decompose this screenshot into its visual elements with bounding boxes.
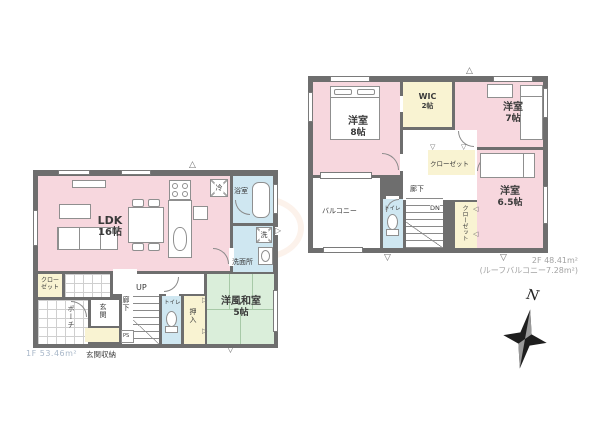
bedroom65-label: 洋室 6.5帖 [488,186,532,209]
closet-door-marker: ◁ [473,231,478,238]
toilet-2f-label: トイレ [384,204,401,212]
bedroom8-label: 洋室 8帖 [328,116,388,139]
refrigerator: 冷 [210,179,228,197]
hallway-upper [113,274,204,294]
closet-door-marker: ◁ [473,206,478,213]
toilet-1f-label: トイレ [164,298,181,306]
ps-label: PS [123,333,129,339]
genkan-label: 玄関 [99,303,106,319]
pillow [334,89,352,95]
washroom-label: 洗面所 [232,257,253,267]
washing-machine: 洗 [256,227,272,243]
balcony-slider [320,172,372,179]
window [493,76,533,82]
vent-marker-down: ▽ [384,254,391,263]
toilet-bowl [387,214,398,230]
window [273,290,278,332]
vent-marker-up: △ [466,67,473,76]
dishwasher [193,206,208,220]
room-genkan-storage [85,328,119,342]
toilet-tank [386,229,399,236]
stove-burner [172,183,178,189]
stove-burner [182,191,188,197]
closet-upper-label: クローゼット [430,158,469,168]
door-opening [113,269,137,274]
dining-chair [148,243,160,251]
washitsu-label: 洋風和室 5帖 [209,296,273,319]
closet-side-label: クローゼット [461,205,467,241]
refrigerator-label: 冷 [215,183,224,193]
window [58,170,90,175]
window [323,247,363,253]
floor2-plan: 洋室 8帖 WIC 2帖 洋室 7帖 クローゼット 廊下 バルコニー トイレ D… [308,76,548,253]
porch-label: ポーチ [67,305,74,329]
dining-chair [148,199,160,207]
wic-label: WIC 2帖 [403,92,452,110]
stairs-diagonal [406,222,443,248]
stairs-diagonal [133,320,159,344]
window [33,210,38,246]
floorplan-canvas: 趣 [0,0,600,433]
slide-marker: ▷ [202,297,207,304]
approach-tiles [65,274,110,297]
window [273,184,278,214]
closet-door-marker: ▽ [461,144,466,151]
slide-marker: ▷ [202,328,207,335]
compass: N [496,285,554,375]
vanity-basin [261,250,270,262]
oshiire-label: 押入 [189,308,196,324]
stairs-up-label: UP [136,283,147,292]
stairs-down-label: DN [430,204,440,212]
door-opening [166,291,179,296]
stove-burner [172,191,178,197]
toilet-bowl [166,311,177,327]
closet-1f-label: クロー ゼット [38,277,62,291]
bedroom7-label: 洋室 7帖 [491,102,535,125]
dining-chair [132,243,144,251]
window [308,92,313,122]
balcony-label: バルコニー [322,206,357,216]
floor1-area-label: 1F 53.46m² [26,349,77,358]
hallway-label-1f: 廊下 [122,296,129,312]
floor1-plan: 冷 洗 PS LDK 16帖 [33,170,278,348]
window [543,88,548,118]
door-marker-right: ▷ [275,227,281,235]
compass-north-label: N [524,287,541,305]
closet-door-marker: ▽ [430,144,435,151]
bathtub [252,182,270,218]
vent-marker-up: △ [189,161,196,170]
window [121,170,151,175]
door-opening [400,154,403,171]
stove-burner [182,183,188,189]
toilet-tank [165,326,178,333]
genkan-storage-label: 玄関収納 [86,349,116,360]
desk [487,84,513,98]
floor2-area-label: 2F 48.41m² (ルーフバルコニー7.28m²) [430,256,578,276]
pillow [357,89,375,95]
tv-board [72,180,106,188]
bath-label: 浴室 [234,186,248,196]
window [330,76,370,82]
window [543,186,548,224]
bed-head [523,153,535,178]
dining-chair [132,199,144,207]
bed-head [520,85,543,97]
vent-marker-down: ▽ [227,346,234,355]
washing-machine-label: 洗 [260,230,269,240]
hallway-2f-label: 廊下 [410,184,424,194]
ldk-label: LDK 16帖 [80,214,140,239]
kitchen-sink [173,227,187,251]
